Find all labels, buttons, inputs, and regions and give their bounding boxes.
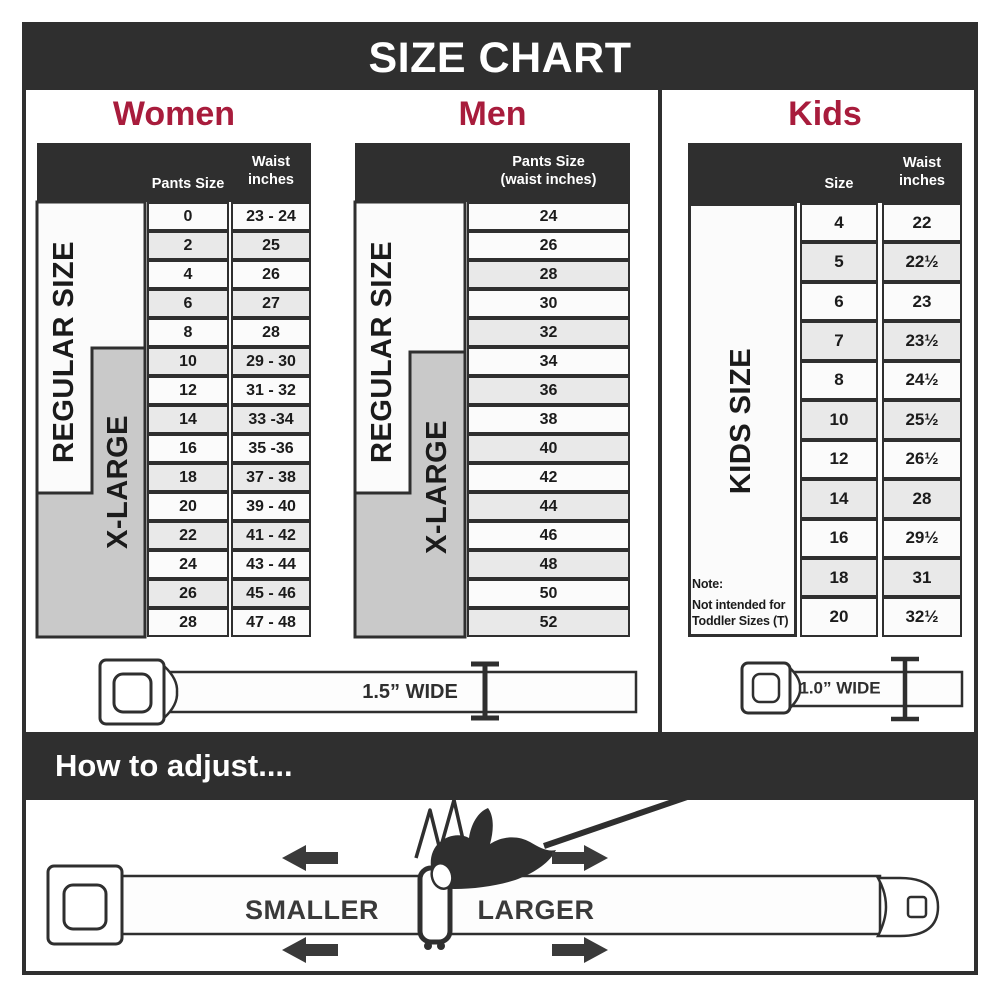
kids-belt-width-label: 1.0” WIDE [799, 679, 880, 698]
men-header-line1: Pants Size [467, 153, 630, 171]
kids-note: Note: Not intended for Toddler Sizes (T) [692, 576, 796, 629]
right-arrow-top [552, 845, 608, 871]
kids-size-value: 14 [800, 479, 878, 518]
women-regular-size-label: REGULAR SIZE [48, 241, 80, 463]
smaller-label: SMALLER [245, 895, 379, 925]
chart-area: Women Men Kids Pants Size Waist inches R… [26, 90, 974, 732]
women-size-bands: REGULAR SIZE X-LARGE [37, 202, 145, 637]
women-pants-size-column-header: Pants Size [147, 175, 229, 193]
women-pants-size-value: 24 [147, 550, 229, 579]
men-xlarge-label: X-LARGE [421, 420, 453, 554]
women-waist-column-header: Waist inches [231, 153, 311, 189]
women-pants-size-value: 18 [147, 463, 229, 492]
women-waist-value: 27 [231, 289, 311, 318]
kids-waist-value: 22½ [882, 242, 962, 281]
belt-adjustment-illustration: SMALLER LARGER [26, 800, 974, 971]
kids-waist-value: 29½ [882, 519, 962, 558]
kids-size-value: 4 [800, 203, 878, 242]
men-regular-size-label: REGULAR SIZE [366, 241, 398, 463]
waist-header-line1: Waist [882, 154, 962, 172]
kids-waist-value: 23½ [882, 321, 962, 360]
kids-heading: Kids [688, 92, 962, 136]
larger-label: LARGER [478, 895, 595, 925]
women-waist-value: 41 - 42 [231, 521, 311, 550]
women-waist-value: 26 [231, 260, 311, 289]
men-pants-size-value: 30 [467, 289, 630, 318]
kids-size-value: 10 [800, 400, 878, 439]
women-pants-size-value: 26 [147, 579, 229, 608]
adult-belt-width-label: 1.5” WIDE [362, 681, 458, 703]
kids-size-label: KIDS SIZE [725, 348, 757, 494]
women-pants-size-value: 10 [147, 347, 229, 376]
women-pants-size-value: 6 [147, 289, 229, 318]
women-waist-value: 29 - 30 [231, 347, 311, 376]
kids-waist-value: 25½ [882, 400, 962, 439]
women-heading: Women [37, 92, 311, 136]
kids-size-value: 12 [800, 440, 878, 479]
waist-header-line1: Waist [231, 153, 311, 171]
men-pants-size-value: 50 [467, 579, 630, 608]
kids-size-value: 7 [800, 321, 878, 360]
women-size-table: 0 23 - 24 2 25 4 26 6 27 8 28 10 29 - 30 [147, 202, 311, 637]
women-waist-value: 43 - 44 [231, 550, 311, 579]
kids-waist-column-header: Waist inches [882, 154, 962, 190]
seatbelt-buckle [742, 663, 800, 713]
men-header-line2: (waist inches) [467, 171, 630, 189]
women-waist-value: 23 - 24 [231, 202, 311, 231]
adjustment-illustration-area: SMALLER LARGER [26, 800, 974, 971]
how-to-adjust-heading: How to adjust.... [55, 748, 293, 784]
women-pants-size-value: 0 [147, 202, 229, 231]
kids-note-line1: Note: [692, 576, 796, 592]
kids-waist-value: 23 [882, 282, 962, 321]
men-pants-size-value: 46 [467, 521, 630, 550]
kids-size-value: 5 [800, 242, 878, 281]
men-pants-size-value: 32 [467, 318, 630, 347]
left-arrow-top [282, 845, 338, 871]
men-size-bands: REGULAR SIZE X-LARGE [355, 202, 465, 637]
kids-size-column-header: Size [800, 175, 878, 193]
kids-size-value: 6 [800, 282, 878, 321]
kids-size-value: 8 [800, 361, 878, 400]
kids-waist-value: 32½ [882, 597, 962, 636]
adult-belt-illustration: 1.5” WIDE [92, 650, 662, 732]
women-waist-value: 28 [231, 318, 311, 347]
belt-tip [878, 878, 938, 936]
pull-strap-line [544, 800, 690, 846]
men-pants-size-value: 34 [467, 347, 630, 376]
men-pants-size-value: 24 [467, 202, 630, 231]
kids-note-line2: Not intended for [692, 597, 796, 613]
women-waist-value: 25 [231, 231, 311, 260]
section-divider [658, 90, 662, 732]
men-pants-size-value: 42 [467, 463, 630, 492]
frame: SIZE CHART Women Men Kids Pants Size Wai… [22, 22, 978, 975]
women-pants-size-value: 8 [147, 318, 229, 347]
how-to-adjust-banner: How to adjust.... [26, 732, 974, 800]
women-pants-size-value: 16 [147, 434, 229, 463]
seatbelt-buckle [100, 660, 177, 724]
women-waist-value: 39 - 40 [231, 492, 311, 521]
men-pants-size-value: 44 [467, 492, 630, 521]
right-arrow-bottom [552, 937, 608, 963]
women-pants-size-value: 2 [147, 231, 229, 260]
men-pants-size-value: 36 [467, 376, 630, 405]
men-pants-size-value: 38 [467, 405, 630, 434]
women-waist-value: 33 -34 [231, 405, 311, 434]
kids-size-value: 18 [800, 558, 878, 597]
kids-waist-value: 28 [882, 479, 962, 518]
left-arrow-bottom [282, 937, 338, 963]
men-pants-size-value: 40 [467, 434, 630, 463]
women-table-header: Pants Size Waist inches [37, 143, 311, 202]
kids-size-value: 20 [800, 597, 878, 636]
women-pants-size-value: 14 [147, 405, 229, 434]
kids-belt-illustration: 1.0” WIDE [738, 656, 968, 722]
men-pants-size-value: 26 [467, 231, 630, 260]
women-waist-value: 35 -36 [231, 434, 311, 463]
women-waist-value: 31 - 32 [231, 376, 311, 405]
men-pants-size-value: 28 [467, 260, 630, 289]
page-title: SIZE CHART [369, 34, 632, 83]
waist-header-line2: inches [882, 172, 962, 190]
women-waist-value: 47 - 48 [231, 608, 311, 637]
kids-note-line3: Toddler Sizes (T) [692, 613, 796, 629]
waist-header-line2: inches [231, 171, 311, 189]
women-pants-size-value: 28 [147, 608, 229, 637]
seatbelt-buckle [48, 866, 122, 944]
men-table-header: Pants Size (waist inches) [355, 143, 630, 202]
kids-size-table: 4 22 5 22½ 6 23 7 23½ 8 24½ 10 25½ [800, 203, 962, 637]
men-pants-size-value: 52 [467, 608, 630, 637]
kids-size-band: KIDS SIZE [688, 203, 797, 637]
men-size-table: 24 26 28 30 32 34 36 38 40 42 [467, 202, 630, 637]
men-pants-size-column-header: Pants Size (waist inches) [467, 153, 630, 189]
kids-waist-value: 24½ [882, 361, 962, 400]
title-banner: SIZE CHART [26, 26, 974, 90]
size-chart-infographic: SIZE CHART Women Men Kids Pants Size Wai… [0, 0, 1000, 1000]
men-heading: Men [355, 92, 630, 136]
men-pants-size-value: 48 [467, 550, 630, 579]
kids-table-header: Size Waist inches [688, 143, 962, 203]
kids-waist-value: 22 [882, 203, 962, 242]
women-xlarge-label: X-LARGE [102, 415, 134, 549]
kids-waist-value: 31 [882, 558, 962, 597]
women-pants-size-value: 22 [147, 521, 229, 550]
women-pants-size-value: 4 [147, 260, 229, 289]
kids-size-value: 16 [800, 519, 878, 558]
women-waist-value: 37 - 38 [231, 463, 311, 492]
kids-waist-value: 26½ [882, 440, 962, 479]
women-pants-size-value: 20 [147, 492, 229, 521]
women-waist-value: 45 - 46 [231, 579, 311, 608]
women-pants-size-value: 12 [147, 376, 229, 405]
